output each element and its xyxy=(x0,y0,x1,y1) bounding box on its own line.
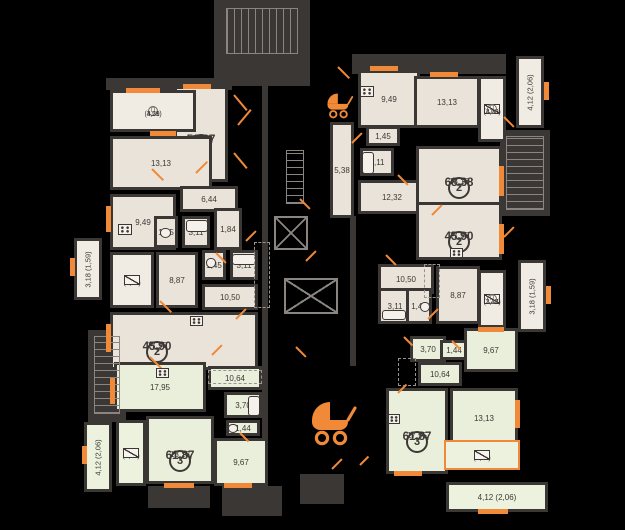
balcony-tl[interactable]: П4,59(3,21) xyxy=(110,90,196,132)
window-opening xyxy=(70,258,75,276)
balcony-tr[interactable]: 4,69(3,28)П xyxy=(478,76,506,142)
wardrobe-zone-outline xyxy=(424,264,440,298)
room-kitchen-tr[interactable]: 9,49 xyxy=(358,70,420,128)
room-area-label: 8,87 xyxy=(169,276,185,285)
door-swing-mark xyxy=(233,94,247,111)
room-area-label: 5,38 xyxy=(334,166,350,175)
staircase-core xyxy=(286,150,304,204)
wardrobe-zone-outline xyxy=(398,358,416,386)
balcony-bl[interactable]: П4,69(3,28) xyxy=(116,420,146,486)
door-swing-mark xyxy=(245,230,256,241)
balcony-ml[interactable]: П3,47(2,43) xyxy=(110,252,154,308)
window-opening xyxy=(499,224,504,254)
window-opening xyxy=(430,72,458,77)
window-opening xyxy=(82,446,87,464)
room-area-label: 10,50 xyxy=(396,275,416,284)
room-area-label: 13,13 xyxy=(437,98,457,107)
door-swing-mark xyxy=(503,226,514,237)
balcony-common-left-bottom: 4,12 (2,06) xyxy=(84,422,112,492)
balcony-area-label: 4,12 (2,06) xyxy=(94,439,103,475)
door-swing-mark xyxy=(359,456,369,466)
wc-fixture-icon xyxy=(228,424,238,433)
stove-fixture-icon xyxy=(360,86,374,97)
balcony-common-left: 3,18 (1,59) xyxy=(74,238,102,300)
stove-fixture-icon xyxy=(450,248,463,258)
tub-fixture-icon xyxy=(382,310,406,320)
balcony-common-right-top: 4,12 (2,06) xyxy=(516,56,544,128)
room-area-label: 9,67 xyxy=(483,346,499,355)
room-area-label: 3,70 xyxy=(420,345,436,354)
floor-plan: 252,8714,2013,139,496,441,453,111,848,87… xyxy=(0,0,625,530)
balcony-area-label: 3,18 (1,59) xyxy=(528,278,537,314)
room-area-label: 13,13 xyxy=(474,414,494,423)
elevator-shaft xyxy=(274,216,308,250)
room-bedroom-br[interactable]: 9,67 xyxy=(464,328,518,372)
room-hall-ml[interactable]: 8,87 xyxy=(156,252,198,308)
tub-fixture-icon xyxy=(248,396,260,416)
room-area-label: 9,49 xyxy=(135,218,151,227)
room-hall-mr[interactable]: 8,87 xyxy=(436,266,480,324)
room-wc-tr[interactable]: 1,45 xyxy=(366,126,400,146)
staircase-top xyxy=(226,8,298,54)
window-icon xyxy=(123,448,139,458)
balcony-area-label: 4,12 (2,06) xyxy=(526,74,535,110)
balcony-area-label: 3,18 (1,59) xyxy=(84,251,93,287)
wardrobe-zone-outline xyxy=(254,242,270,308)
room-area-label: 1,45 xyxy=(375,132,391,141)
window-opening xyxy=(106,206,111,232)
room-area-label: 13,13 xyxy=(151,159,171,168)
window-opening xyxy=(224,483,252,488)
tub-fixture-icon xyxy=(232,254,256,265)
room-bedroom-tl[interactable]: 13,13 xyxy=(110,136,212,190)
room-area-label: 17,95 xyxy=(449,231,469,240)
window-opening xyxy=(499,166,504,196)
wardrobe-zone-outline xyxy=(208,370,262,384)
door-swing-mark xyxy=(337,66,350,79)
window-opening xyxy=(126,88,160,93)
room-bedroom-tr[interactable]: 13,13 xyxy=(414,76,480,128)
window-opening xyxy=(394,471,422,476)
stroller-icon xyxy=(306,396,358,448)
door-swing-mark xyxy=(305,250,316,261)
room-corridor-tr[interactable]: 5,38 xyxy=(330,122,354,218)
room-area-label: 18,16 xyxy=(449,177,469,186)
room-area-label: 13,13 xyxy=(170,450,190,459)
window-opening xyxy=(150,131,176,136)
balcony-area-line: (3,21) xyxy=(144,111,161,120)
tub-fixture-icon xyxy=(186,220,208,232)
stove-fixture-icon xyxy=(156,368,169,378)
loggia-mark-icon: П xyxy=(487,104,497,114)
window-opening xyxy=(370,66,398,71)
wall-block xyxy=(300,474,344,504)
window-opening xyxy=(164,483,194,488)
door-swing-mark xyxy=(237,109,251,126)
room-corridor-ml[interactable]: 10,50 xyxy=(202,284,258,310)
stove-fixture-icon xyxy=(190,316,203,326)
room-area-label: 1,84 xyxy=(220,225,236,234)
room-area-label: 6,44 xyxy=(201,195,217,204)
room-area-label: 17,95 xyxy=(147,341,167,350)
room-hall2-tl[interactable]: 1,84 xyxy=(214,208,242,250)
room-area-label: 9,67 xyxy=(233,458,249,467)
window-opening xyxy=(515,400,520,428)
wc-fixture-icon xyxy=(160,228,171,238)
room-area-label: 8,87 xyxy=(450,291,466,300)
tub-fixture-icon xyxy=(362,152,374,174)
door-swing-mark xyxy=(295,346,306,357)
balcony-common-right: 3,18 (1,59) xyxy=(518,260,546,332)
elevator-shaft xyxy=(284,278,338,314)
room-corridor-br[interactable]: 10,64 xyxy=(418,362,462,386)
wall-block xyxy=(350,216,356,366)
window-opening xyxy=(110,378,115,404)
wall-block xyxy=(148,486,210,508)
room-bedroom-bl[interactable]: 9,67 xyxy=(214,438,268,486)
room-living-tr[interactable]: 268,3818,16 xyxy=(416,146,502,208)
room-area-label: 12,32 xyxy=(382,193,402,202)
window-icon xyxy=(124,275,140,285)
balcony-mr[interactable]: 3,47(2,43)П xyxy=(478,270,506,328)
window-opening xyxy=(106,324,111,352)
balcony-common-bottom: 4,12 (2,06) xyxy=(446,482,548,512)
staircase-right xyxy=(506,136,544,210)
door-swing-mark xyxy=(233,152,247,169)
room-living-bl[interactable]: 361,8713,13 xyxy=(146,416,214,484)
wc-fixture-icon xyxy=(420,302,430,312)
window-opening xyxy=(478,509,508,514)
window-opening xyxy=(544,82,549,100)
wc-fixture-icon xyxy=(206,258,216,268)
door-swing-mark xyxy=(331,458,342,469)
wall-block xyxy=(222,486,282,516)
window-icon xyxy=(474,450,490,460)
stove-fixture-icon xyxy=(118,224,132,235)
balcony-br[interactable]: П4,69(3,28) xyxy=(444,440,520,470)
loggia-mark-icon: П xyxy=(487,294,497,304)
window-opening xyxy=(183,84,211,89)
room-area-label: 9,49 xyxy=(381,95,397,104)
stove-fixture-icon xyxy=(388,414,400,424)
room-bedroom2-br[interactable]: 13,13 xyxy=(450,388,518,448)
balcony-area-label: 4,12 (2,06) xyxy=(478,493,517,502)
room-area-label: 10,64 xyxy=(430,370,450,379)
stroller-icon-small xyxy=(324,90,354,120)
room-area-label: 17,95 xyxy=(150,383,170,392)
room-living-br[interactable]: 361,8717,95 xyxy=(386,388,448,474)
room-area-label: 10,50 xyxy=(220,293,240,302)
room-area-label: 17,95 xyxy=(407,431,427,440)
window-opening xyxy=(546,286,551,304)
window-opening xyxy=(478,327,504,332)
